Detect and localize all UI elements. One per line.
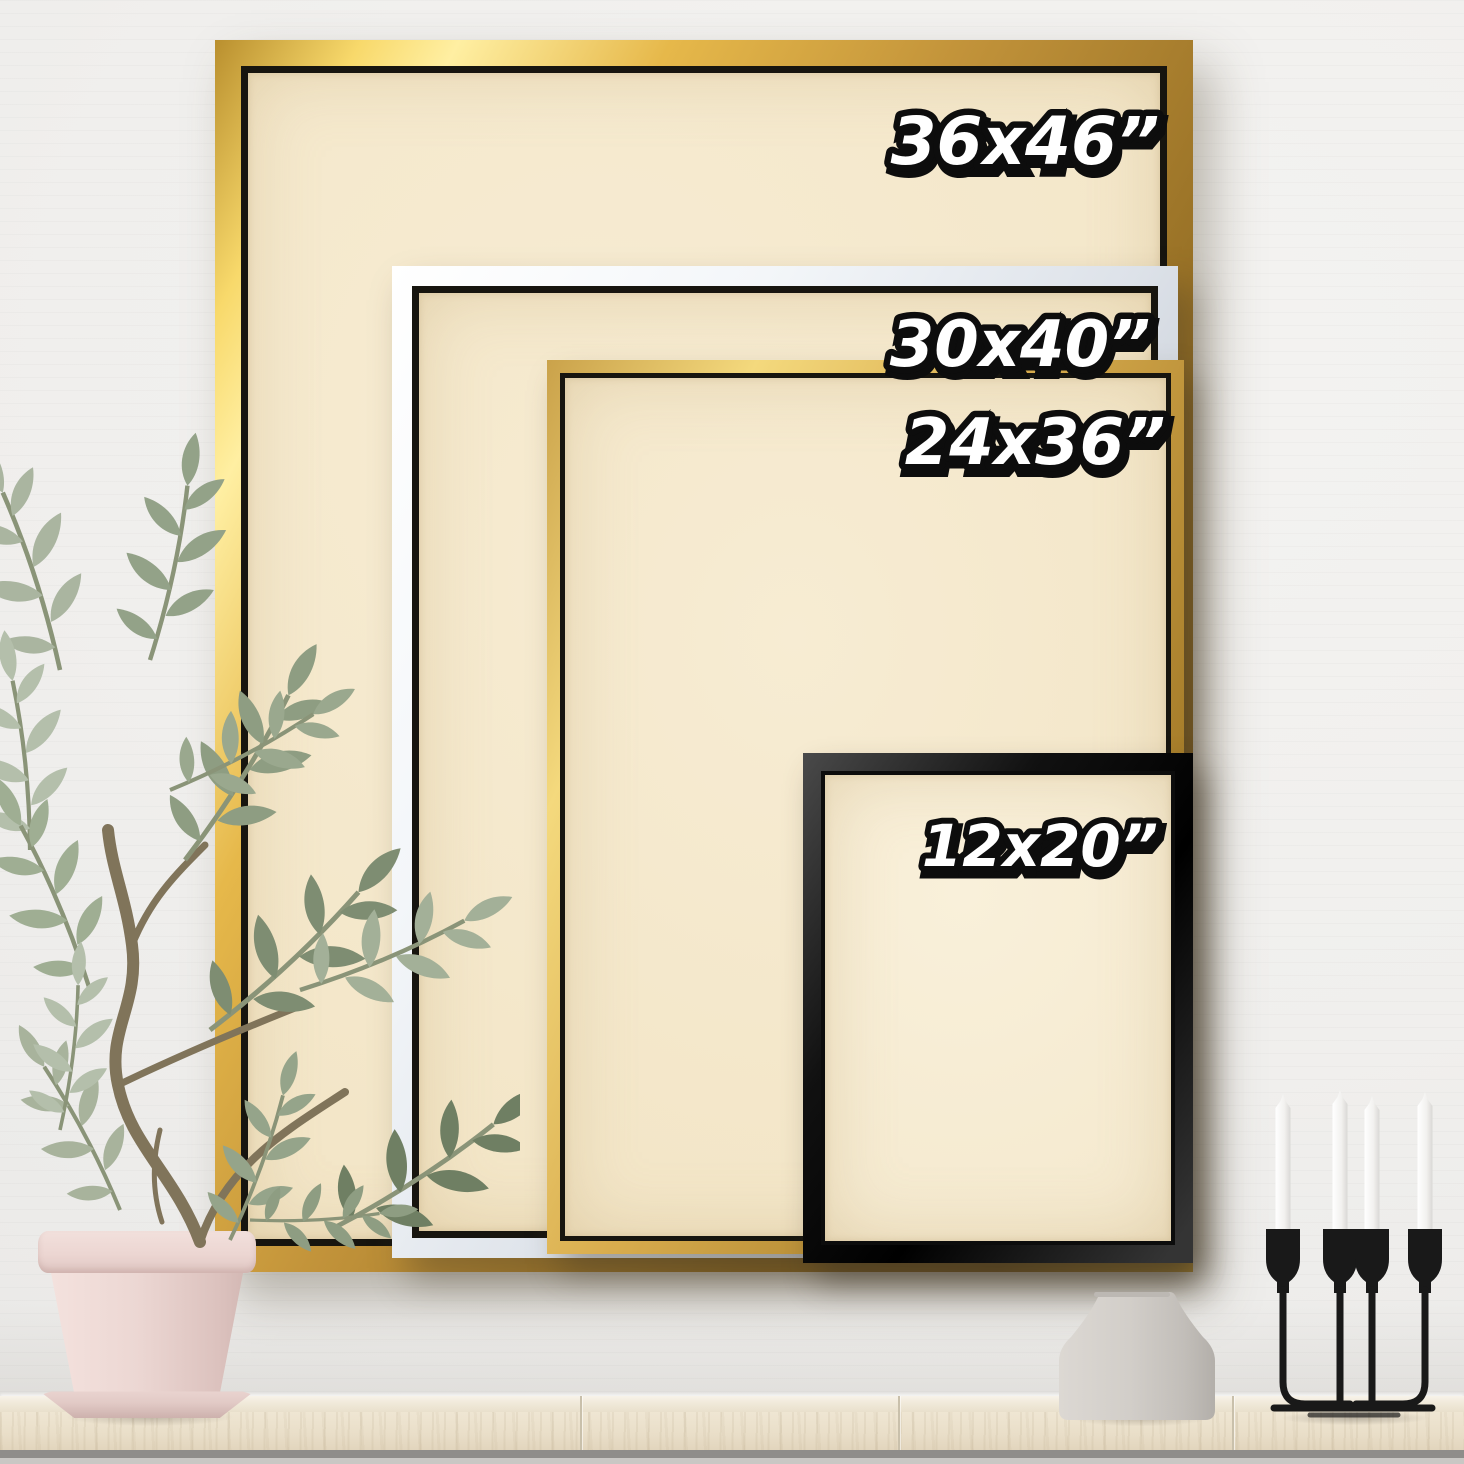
white-candles — [1276, 1090, 1433, 1242]
size-label-24x36: 24x36” 24x36” — [875, 368, 1195, 493]
ceramic-vase — [1057, 1290, 1217, 1422]
shelf-bottom-shadow — [0, 1450, 1464, 1458]
size-label-12x20: 12x20” 12x20” — [885, 778, 1195, 893]
candelabra — [1252, 1082, 1458, 1427]
shelf-plank-seam — [580, 1396, 582, 1450]
svg-text:12x20”: 12x20” — [922, 812, 1158, 880]
floor-strip — [0, 1458, 1464, 1464]
product-photo-scene: 36x46” 36x46” 30x40” 30x40” 24x36” 24x36… — [0, 0, 1464, 1464]
olive-plant — [0, 430, 520, 1440]
size-label-36x46: 36x46” 36x46” — [865, 66, 1185, 191]
candelabra-arms — [1274, 1290, 1432, 1415]
svg-text:24x36”: 24x36” — [905, 406, 1166, 480]
shelf-plank-seam — [898, 1396, 900, 1450]
svg-text:36x46”: 36x46” — [891, 103, 1160, 180]
